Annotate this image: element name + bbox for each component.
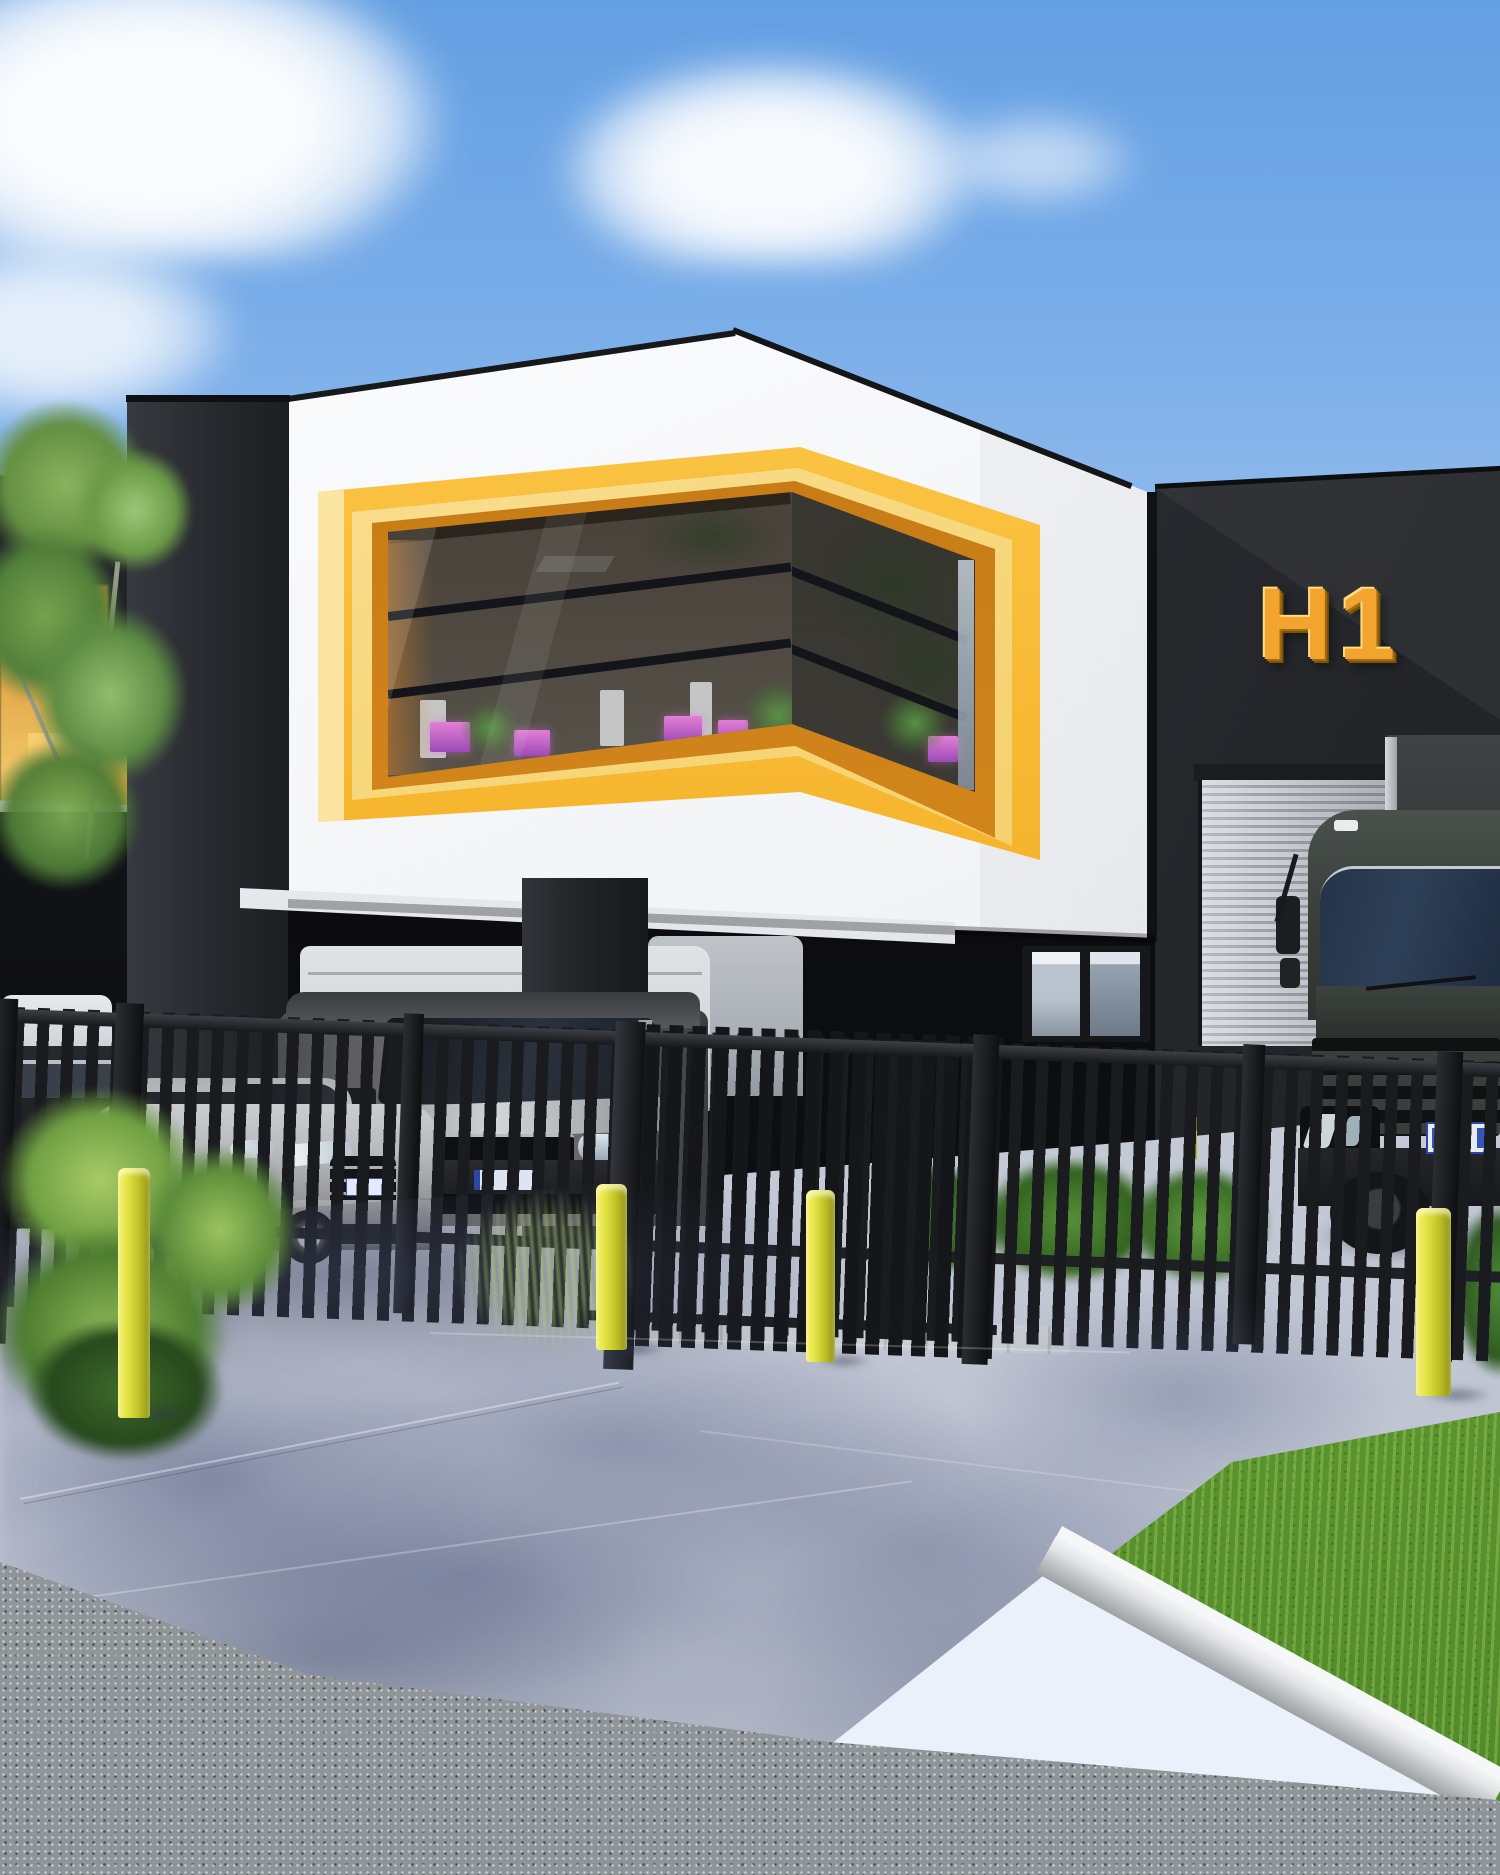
safety-bollard	[1416, 1208, 1451, 1396]
door-pane	[1090, 952, 1140, 1036]
truck-windshield	[1320, 866, 1500, 993]
truck-roof-sticker	[1334, 820, 1358, 831]
truck-cowl	[1316, 986, 1500, 1040]
cloud	[920, 105, 1150, 215]
cloud	[0, 0, 450, 260]
safety-bollard	[596, 1184, 627, 1350]
door-pane	[1032, 952, 1080, 1036]
tree-foliage	[60, 430, 210, 590]
unit-sign: H1	[1258, 566, 1428, 686]
safety-bollard	[118, 1168, 150, 1418]
truck-mirror	[1280, 958, 1300, 988]
architectural-rendering: H1	[0, 0, 1500, 1875]
sky-reflection-sliver	[958, 560, 974, 790]
corner-reveal-line	[1147, 492, 1157, 942]
pillar-cap	[126, 395, 290, 402]
glass-entry-door	[1022, 946, 1150, 1042]
safety-bollard	[806, 1190, 835, 1362]
